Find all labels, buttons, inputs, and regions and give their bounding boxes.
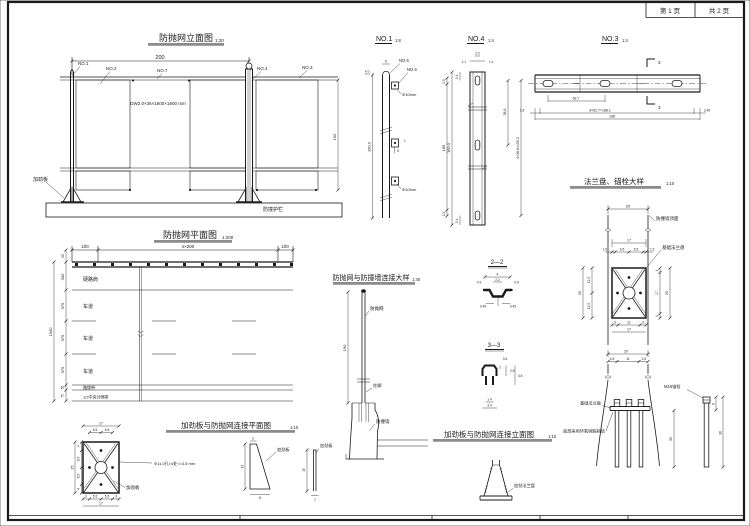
dim-label: 6 — [712, 403, 716, 405]
guardrail-label: 防撞护栏 — [263, 206, 283, 213]
part-label: NO.4 — [257, 66, 268, 71]
dim-label: 200 — [155, 55, 164, 61]
section-2-2-figure: 2—2 4 2.2 0.9 0.9 0.45 0.45 — [477, 260, 519, 309]
dim-label: 1 — [314, 498, 316, 502]
bolt-label: M16锚栓 — [664, 383, 681, 390]
stiffener-label: 加劲板 — [320, 442, 333, 449]
dim-label: 190 — [342, 344, 347, 351]
dim-label: 20 — [626, 204, 631, 209]
no4-detail-figure: NO.4 1:4 2.2 1.1 1.1 2.4 2.4 160.0 38.8 … — [446, 36, 523, 227]
row-label: 车道 — [83, 335, 93, 342]
figure-title: NO.4 — [468, 36, 484, 43]
dim-label: 3 — [642, 321, 644, 325]
figure-title: 加劲板与防抛网连接立面图 — [444, 429, 534, 439]
net-post-marks — [75, 263, 293, 266]
stiffener-label: 加劲板 — [33, 176, 48, 183]
dim-label: 1 — [404, 139, 406, 143]
dim-label: 2.2 — [495, 278, 500, 282]
dim-label: 4.5 — [610, 357, 615, 361]
dim-label: 190.0 — [367, 141, 372, 152]
dim-label: 4 — [655, 315, 659, 317]
page-number: 第 1 页 — [660, 6, 681, 15]
dim-label: 1.1 — [489, 60, 494, 64]
dim-label: 1.5 — [603, 248, 608, 252]
dim-label: 17 — [99, 502, 103, 506]
dim-label: 0.9 — [477, 281, 482, 285]
dim-label: 11 — [626, 357, 630, 361]
dim-label: 0.6 — [503, 357, 508, 361]
wall-label: 防撞墙 — [376, 418, 390, 425]
scale-label: 1:4 — [622, 38, 628, 43]
dim-label: 75 — [61, 394, 65, 398]
scale-label: 1:10 — [290, 425, 299, 430]
dim-label: 1500 — [48, 327, 53, 337]
dim-label: 160.0 — [446, 142, 451, 153]
dim-label: 190 — [332, 133, 337, 140]
dim-label: 38.8 — [503, 109, 507, 116]
dim-label: 8.5 — [77, 474, 81, 479]
scale-label: 1:20 — [215, 38, 224, 43]
gusset-side-view: 3 15 8 加劲板 — [241, 437, 291, 501]
dim-label: 3 — [252, 437, 254, 441]
dim-label: 15 — [241, 465, 245, 469]
dim-label: 3 — [115, 495, 117, 499]
dim-label: 300 — [60, 273, 65, 280]
row-label: 车道 — [83, 368, 93, 375]
dim-label: 4 — [77, 445, 81, 447]
dim-label: 6.5 — [105, 428, 110, 432]
dim-label: 5.5 — [93, 495, 98, 499]
dim-label: 3 — [614, 321, 616, 325]
dim-label: 12.5 — [587, 303, 591, 309]
flange-label: 加劲法兰盘 — [514, 482, 535, 489]
dim-label: 3 — [85, 495, 87, 499]
plan-figure: 防抛网平面图 1:200 100 n×200 100 硬路肩 — [48, 229, 295, 403]
dim-label: 5.5 — [105, 495, 110, 499]
anchor-embed-figure: 20 4.5 11 4.5 基础法兰盘 底部采用环氧树脂粘结 30 M16锚栓 — [563, 350, 724, 469]
wall-connection-figure: 防抛网与防撞墙连接大样 1:40 防抛网 柱脚 190 防撞墙 — [333, 273, 429, 459]
dim-label: 1.6 — [520, 109, 525, 113]
dim-label: 4.5 — [642, 357, 647, 361]
dim-label: 1.5 — [650, 248, 655, 252]
stiffener-edge-view: 加劲板 15 1 — [302, 442, 333, 502]
dim-label: 8 — [259, 496, 261, 500]
scale-label: 1:10 — [548, 434, 557, 439]
no3-detail-figure: NO.3 1:4 3 3 62.7 1.6 3×62.7=188.1 2.45 … — [520, 36, 711, 120]
dim-label: 12.5 — [587, 277, 591, 283]
dim-label: 6 — [385, 60, 387, 64]
dim-label: 50 — [61, 386, 65, 390]
dim-label: 2.5 — [510, 369, 515, 373]
part-label: NO.2 — [106, 66, 117, 71]
dim-label: 2.45 — [704, 109, 710, 113]
scale-label: 1:40 — [412, 277, 421, 282]
dim-label: 25 — [61, 254, 65, 258]
dim-label: 3×62.7=188.1 — [589, 109, 611, 113]
part-label: NO.7 — [157, 68, 168, 73]
section-mark: 3 — [658, 105, 661, 110]
dim-label: 198 — [609, 115, 615, 119]
flange-detail-figure: 法兰盘、锚栓大样 1:10 20 防撞墙顶面 17 1.5 6.5 6.5 1.… — [570, 176, 685, 345]
hole-note: Φ11.0孔×4处 t=3.5 mm — [154, 460, 196, 466]
dim-label: 20 — [624, 350, 628, 354]
dim-label: 2.5 — [442, 79, 446, 84]
dim-label: 17 — [99, 422, 103, 426]
dim-label: 375 — [60, 302, 65, 309]
dim-label: 8.5 — [77, 457, 81, 462]
dim-label: 30 — [669, 437, 673, 441]
dim-label: 0.9 — [514, 281, 519, 285]
dim-label: 4×38.8=155.2 — [516, 137, 520, 159]
dim-label: 4 — [655, 269, 659, 271]
dim-label: 2.4 — [455, 219, 459, 224]
no1-detail-figure: NO.1 1:8 6 3.5 NO.5 NO.6 Φ10mm 1 5 Φ10mm… — [365, 36, 449, 220]
dim-label: 25 — [665, 291, 669, 295]
stiffener-plan-figure: 加劲板与防抛网连接平面图 1:10 17 6.5 6.5 4 8.5 8.5 4… — [71, 420, 334, 506]
row-label: 路缘带 — [83, 384, 95, 390]
epoxy-note: 底部采用环氧树脂粘结 — [563, 428, 605, 435]
dim-label: 15 — [302, 468, 306, 472]
scale-label: 1:200 — [222, 235, 234, 240]
scale-label: 1:8 — [395, 38, 401, 43]
figure-title: NO.1 — [376, 36, 392, 43]
cad-drawing: 第 1 页 共 2 页 防抛网立面图 1:20 200 DW2.0×36×160… — [0, 0, 750, 526]
dim-label: 4 — [497, 273, 499, 277]
row-label: 硬路肩 — [83, 276, 98, 283]
row-label: 车道 — [83, 303, 93, 310]
dim-label: 4.5 — [518, 374, 523, 378]
part-label: NO.6 — [407, 67, 417, 72]
figure-title: 防抛网与防撞墙连接大样 — [333, 273, 410, 282]
figure-title: 2—2 — [491, 260, 504, 266]
figure-title: 法兰盘、锚栓大样 — [584, 176, 644, 186]
dim-label: 375 — [60, 366, 65, 373]
dim-label: Φ10mm — [402, 187, 417, 192]
dim-label: 6.5 — [634, 248, 639, 252]
dim-label: 5 — [397, 149, 399, 153]
plate-label: 基础法兰盘 — [580, 400, 601, 407]
dim-label: 11 — [627, 321, 631, 325]
anchor-bolts — [614, 400, 644, 468]
stiffener-elevation-figure: 加劲板与防抛网连接立面图 1:10 加劲法兰盘 — [433, 429, 557, 500]
figure-title: 加劲板与防抛网连接平面图 — [181, 420, 271, 430]
dim-label: 2.2 — [475, 52, 480, 56]
total-pages: 共 2 页 — [709, 6, 730, 15]
dim-label: 100 — [81, 244, 89, 249]
wall-top-label: 防撞墙顶面 — [656, 215, 679, 222]
dim-label: 6.5 — [93, 428, 98, 432]
part-label: NO.5 — [399, 58, 409, 63]
figure-title: 防抛网平面图 — [163, 229, 217, 240]
dim-label: 62.7 — [573, 97, 580, 101]
dim-label: 3.4 — [487, 404, 492, 408]
stiffener-label: 加劲板 — [277, 446, 290, 453]
scale-label: 1:10 — [666, 181, 675, 186]
part-label: NO.1 — [78, 61, 89, 66]
part-label: NO.3 — [302, 65, 313, 70]
stiffener-label: 加劲板 — [126, 484, 140, 491]
dim-label: 1.1 — [462, 60, 467, 64]
plate-label: 基础法兰盘 — [662, 244, 685, 251]
dim-label: 2.5 — [442, 212, 446, 217]
dim-label: 25 — [578, 291, 582, 295]
dim-label: 100 — [281, 244, 289, 249]
dim-label: 0.45 — [510, 305, 516, 309]
drawing-sheet: 第 1 页 共 2 页 防抛网立面图 1:20 200 DW2.0×36×160… — [0, 0, 750, 526]
dim-label: 6.5 — [620, 248, 625, 252]
row-label: 1/2中央分隔带 — [83, 394, 109, 400]
elevation-figure: 防抛网立面图 1:20 200 DW2.0×36×1600×1900 mm — [33, 32, 342, 217]
dim-label: 0.45 — [480, 305, 486, 309]
dim-label: 30 — [719, 431, 723, 435]
dim-label: 1.4 — [487, 398, 492, 402]
dim-label: 17 — [655, 291, 659, 295]
section-mark: 3 — [658, 60, 661, 65]
net-label: 防抛网 — [370, 305, 384, 312]
scale-label: 1:4 — [488, 38, 494, 43]
figure-title: NO.3 — [602, 36, 618, 43]
figure-title: 3—3 — [488, 343, 501, 349]
dim-label: 25 — [71, 466, 75, 470]
base-label: 柱脚 — [373, 382, 381, 389]
dim-label: 4 — [77, 488, 81, 490]
mesh-spec: DW2.0×36×1600×1900 mm — [130, 101, 186, 106]
dim-label: n×200 — [182, 244, 195, 249]
dim-label: 3.5 — [365, 70, 369, 75]
dim-label: Φ10mm — [402, 92, 417, 97]
dim-label: 17 — [627, 328, 631, 332]
dim-label: 2.4 — [455, 75, 459, 80]
figure-title: 防抛网立面图 — [159, 32, 213, 43]
section-3-3-figure: 3—3 0.6 2.5 4.5 1.4 3.4 — [482, 343, 523, 408]
dim-label: 375 — [60, 334, 65, 341]
dim-label: 17 — [627, 239, 631, 243]
